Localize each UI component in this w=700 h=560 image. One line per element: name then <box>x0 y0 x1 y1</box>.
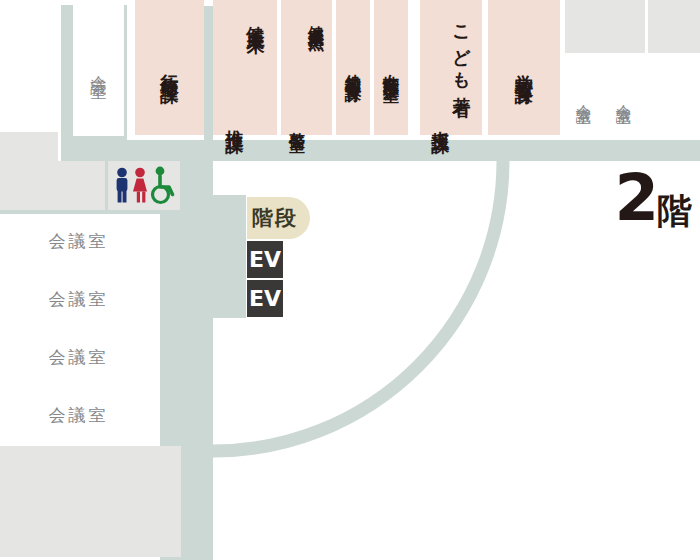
restroom-sign <box>108 161 180 210</box>
dept-label: こども若者 <box>453 12 471 89</box>
meeting-room-label: 会議室 <box>49 230 109 253</box>
dept-yoji-kyoiku-hoiku-ka: 幼児教育保育課 <box>336 0 370 135</box>
unlabeled-area-top-left-lower <box>0 161 105 210</box>
unlabeled-area-top-right-1 <box>565 0 645 53</box>
wheelchair-accessible-icon <box>153 167 173 203</box>
dept-label: 学校教育課 <box>515 60 533 75</box>
meeting-room-label: 会議室 <box>49 288 109 311</box>
meeting-room-label: 会議室 <box>576 93 591 99</box>
floor-map-2f: 会議室 会議室 会議室 会議室 会議室 会議室 会議室 行政管理課 推進課 健康… <box>0 0 700 560</box>
mens-room-icon <box>117 168 128 203</box>
meeting-room-label: 会議室 <box>49 404 109 427</box>
meeting-room-right-1: 会議室 <box>565 57 601 135</box>
floor-number: 2 <box>614 166 657 230</box>
meeting-room-label: 会議室 <box>49 346 109 369</box>
dept-label: 行政管理課 <box>161 60 179 75</box>
dept-label: 幼児教育保育課 <box>345 61 361 75</box>
meeting-room-left-2: 会議室 <box>0 273 157 326</box>
dept-label: 女性活躍推進室 <box>383 61 399 75</box>
elevator-2: EV <box>247 280 283 317</box>
elevator-1: EV <box>247 241 283 278</box>
unlabeled-area-bottom-left <box>0 446 181 557</box>
stairs-label: 階段 <box>247 197 310 239</box>
stairs-text: 階段 <box>252 204 298 232</box>
meeting-room-left-3: 会議室 <box>0 331 157 384</box>
dept-label: 健康未来 <box>247 12 265 24</box>
dept-gakko-kyoiku-ka: 学校教育課 <box>488 0 560 135</box>
dept-label: 整備室 <box>289 119 305 125</box>
meeting-room-left-4: 会議室 <box>0 389 157 442</box>
meeting-room-label: 会議室 <box>616 93 631 99</box>
dept-label: 健康未来拠点 <box>308 12 324 24</box>
dept-gyosei-kanri-ka: 行政管理課 <box>135 0 204 135</box>
unlabeled-area-top-right-2 <box>648 0 700 53</box>
dept-kenko-mirai-suishin-ka: 推進課 健康未来 <box>213 0 277 135</box>
womens-room-icon <box>133 168 147 203</box>
floor-indicator: 2 階 <box>598 166 692 230</box>
elevator-text: EV <box>249 286 281 311</box>
elevator-text: EV <box>249 247 281 272</box>
dept-label: 推進課 <box>226 116 244 125</box>
meeting-room-right-2: 会議室 <box>605 57 641 135</box>
meeting-room-left-1: 会議室 <box>0 215 157 268</box>
meeting-room-top: 会議室 <box>73 0 124 136</box>
dept-josei-katsuyaku-suishin-shitsu: 女性活躍推進室 <box>374 0 408 135</box>
dept-kenko-mirai-kyoten-seibi-shitsu: 整備室 健康未来拠点 <box>281 0 332 135</box>
floor-suffix: 階 <box>657 194 692 229</box>
meeting-room-label: 会議室 <box>91 62 107 74</box>
dept-label: 支援課 <box>432 116 450 125</box>
dept-kodomo-wakamono-shien-ka: 支援課 こども若者 <box>420 0 482 135</box>
